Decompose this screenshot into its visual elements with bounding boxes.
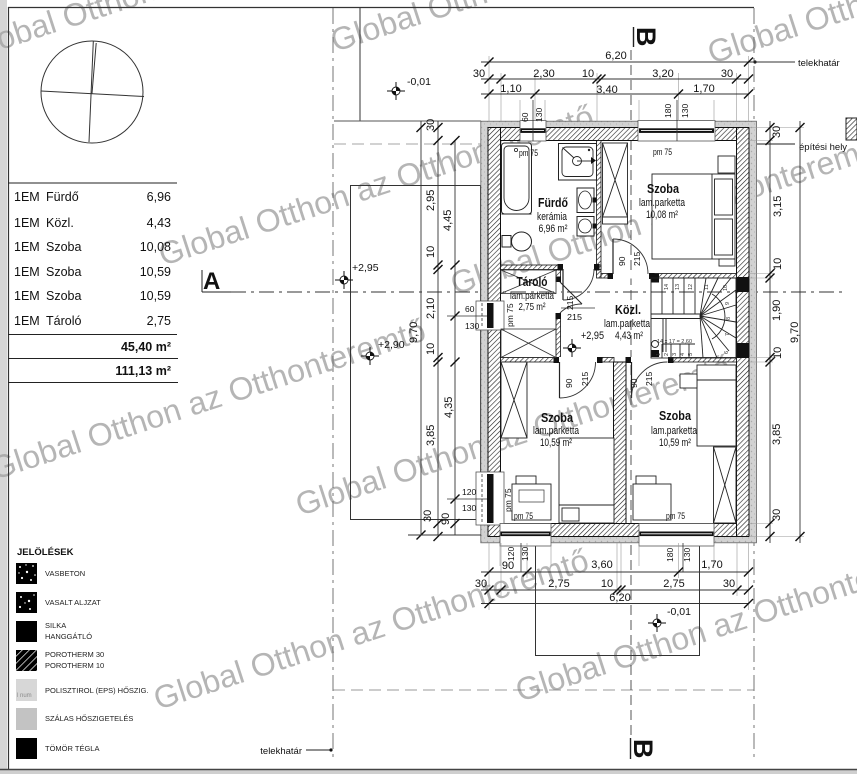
svg-text:3,60: 3,60 xyxy=(591,559,612,571)
svg-text:lam.parketta: lam.parketta xyxy=(533,425,580,437)
svg-text:lam.parketta: lam.parketta xyxy=(639,197,686,209)
svg-text:6,20: 6,20 xyxy=(605,50,626,62)
svg-text:130: 130 xyxy=(465,321,479,331)
svg-text:HANGGÁTLÓ: HANGGÁTLÓ xyxy=(45,632,92,641)
svg-text:pm 75: pm 75 xyxy=(514,511,533,521)
svg-text:1EM: 1EM xyxy=(14,265,40,279)
svg-text:2,10: 2,10 xyxy=(425,298,437,319)
svg-text:pm 75: pm 75 xyxy=(519,148,538,158)
svg-text:1,70: 1,70 xyxy=(701,559,722,571)
svg-text:Szoba: Szoba xyxy=(46,289,81,303)
svg-text:10,59 m²: 10,59 m² xyxy=(540,437,572,449)
svg-text:4: 4 xyxy=(680,353,686,356)
svg-text:Szoba: Szoba xyxy=(46,265,81,279)
svg-text:130: 130 xyxy=(680,104,690,118)
svg-text:lam.parketta: lam.parketta xyxy=(651,425,698,437)
svg-text:1,90: 1,90 xyxy=(771,300,783,321)
svg-text:30: 30 xyxy=(721,68,733,80)
svg-text:Fürdő: Fürdő xyxy=(46,190,79,204)
svg-text:30: 30 xyxy=(422,510,434,522)
svg-text:90: 90 xyxy=(617,256,627,266)
svg-text:10,59 m²: 10,59 m² xyxy=(659,437,691,449)
svg-text:Közl.: Közl. xyxy=(615,302,641,317)
svg-text:10: 10 xyxy=(425,246,437,258)
svg-text:14 x 17 = 2,60: 14 x 17 = 2,60 xyxy=(657,339,692,345)
svg-text:kerámia: kerámia xyxy=(537,211,568,223)
svg-text:3,40: 3,40 xyxy=(596,84,617,96)
svg-text:30: 30 xyxy=(723,578,735,590)
svg-text:30: 30 xyxy=(771,126,783,138)
svg-text:10: 10 xyxy=(601,578,613,590)
svg-text:14: 14 xyxy=(664,284,670,290)
svg-text:4,43: 4,43 xyxy=(147,216,171,230)
svg-text:2,75: 2,75 xyxy=(147,314,171,328)
svg-text:45,40 m²: 45,40 m² xyxy=(121,340,171,354)
svg-text:60: 60 xyxy=(520,112,530,122)
svg-text:30: 30 xyxy=(425,119,437,131)
svg-text:180: 180 xyxy=(665,548,675,562)
svg-text:3: 3 xyxy=(672,353,678,356)
svg-text:2,95: 2,95 xyxy=(425,190,437,211)
svg-text:1EM: 1EM xyxy=(14,240,40,254)
svg-text:1EM: 1EM xyxy=(14,314,40,328)
svg-text:10,08 m²: 10,08 m² xyxy=(646,209,678,221)
svg-text:-0,01: -0,01 xyxy=(667,606,691,618)
svg-text:POLISZTIROL (EPS) HŐSZIG.: POLISZTIROL (EPS) HŐSZIG. xyxy=(45,686,149,695)
svg-text:pm 75: pm 75 xyxy=(653,147,672,157)
svg-text:2,75: 2,75 xyxy=(663,578,684,590)
svg-text:építési hely: építési hely xyxy=(799,142,847,153)
svg-text:3,85: 3,85 xyxy=(425,425,437,446)
svg-text:215: 215 xyxy=(565,296,575,310)
svg-text:9: 9 xyxy=(725,302,731,305)
svg-text:10: 10 xyxy=(582,68,594,80)
svg-text:1EM: 1EM xyxy=(14,216,40,230)
svg-text:pm 75: pm 75 xyxy=(503,488,513,512)
svg-text:111,13 m²: 111,13 m² xyxy=(115,364,171,378)
svg-text:8: 8 xyxy=(726,317,732,320)
svg-text:A: A xyxy=(203,268,220,295)
svg-text:1: 1 xyxy=(656,353,662,356)
svg-text:4,45: 4,45 xyxy=(442,210,454,231)
svg-text:Szoba: Szoba xyxy=(647,181,680,196)
svg-text:TÖMÖR TÉGLA: TÖMÖR TÉGLA xyxy=(45,744,99,753)
svg-text:Szoba: Szoba xyxy=(659,408,692,423)
svg-text:JELÖLÉSEK: JELÖLÉSEK xyxy=(17,547,74,558)
svg-text:POROTHERM 10: POROTHERM 10 xyxy=(45,661,104,670)
svg-text:215: 215 xyxy=(632,252,642,266)
svg-text:SILKA: SILKA xyxy=(45,621,66,630)
svg-text:3,15: 3,15 xyxy=(772,196,784,217)
svg-text:+2,95: +2,95 xyxy=(352,262,379,274)
svg-text:6,20: 6,20 xyxy=(609,592,630,604)
svg-text:4,35: 4,35 xyxy=(443,397,455,418)
svg-text:9,70: 9,70 xyxy=(789,322,801,343)
svg-text:6,96: 6,96 xyxy=(147,190,171,204)
svg-text:130: 130 xyxy=(520,547,530,561)
svg-text:Szoba: Szoba xyxy=(541,410,574,425)
svg-text:60: 60 xyxy=(465,304,475,314)
svg-text:10: 10 xyxy=(772,258,784,270)
svg-text:B: B xyxy=(631,27,661,47)
svg-text:10,59: 10,59 xyxy=(140,265,171,279)
svg-text:B: B xyxy=(628,739,658,759)
svg-text:30: 30 xyxy=(475,578,487,590)
svg-text:90: 90 xyxy=(440,513,452,525)
svg-text:2,75 m²: 2,75 m² xyxy=(519,301,546,313)
svg-text:telekhatár: telekhatár xyxy=(260,746,302,757)
svg-text:3,20: 3,20 xyxy=(652,68,673,80)
svg-text:Fürdő: Fürdő xyxy=(538,195,568,210)
svg-text:telekhatár: telekhatár xyxy=(798,58,840,69)
svg-text:120: 120 xyxy=(506,547,516,561)
svg-text:l num: l num xyxy=(17,693,32,699)
svg-text:10: 10 xyxy=(723,285,729,291)
svg-text:130: 130 xyxy=(534,108,544,122)
svg-text:4,43 m²: 4,43 m² xyxy=(615,330,643,342)
svg-text:VASALT ALJZAT: VASALT ALJZAT xyxy=(45,598,101,607)
svg-text:2,30: 2,30 xyxy=(533,68,554,80)
svg-text:11: 11 xyxy=(704,284,710,290)
svg-text:+2,90: +2,90 xyxy=(378,339,405,351)
svg-text:10,59: 10,59 xyxy=(140,289,171,303)
svg-text:SZÁLAS HŐSZIGETELÉS: SZÁLAS HŐSZIGETELÉS xyxy=(45,714,133,723)
svg-text:1EM: 1EM xyxy=(14,190,40,204)
svg-text:30: 30 xyxy=(771,509,783,521)
svg-text:13: 13 xyxy=(675,284,681,290)
svg-text:pm 75: pm 75 xyxy=(666,511,685,521)
svg-text:-0,01: -0,01 xyxy=(407,76,431,88)
svg-text:30: 30 xyxy=(473,68,485,80)
svg-text:120: 120 xyxy=(462,487,476,497)
svg-text:6: 6 xyxy=(724,351,730,354)
svg-text:215: 215 xyxy=(580,372,590,386)
svg-text:2: 2 xyxy=(664,353,670,356)
svg-text:+2,95: +2,95 xyxy=(581,330,604,342)
svg-text:10: 10 xyxy=(425,343,437,355)
svg-text:6,96 m²: 6,96 m² xyxy=(539,223,568,235)
svg-text:180: 180 xyxy=(663,104,673,118)
svg-text:12: 12 xyxy=(688,284,694,290)
svg-text:215: 215 xyxy=(644,372,654,386)
svg-text:pm 75: pm 75 xyxy=(505,303,515,327)
svg-text:2,75: 2,75 xyxy=(548,578,569,590)
svg-text:VASBETON: VASBETON xyxy=(45,569,85,578)
svg-text:9,70: 9,70 xyxy=(408,322,420,343)
svg-text:215: 215 xyxy=(567,312,582,322)
svg-text:Tároló: Tároló xyxy=(46,314,81,328)
svg-text:lam.parketta: lam.parketta xyxy=(604,318,651,330)
svg-text:90: 90 xyxy=(564,378,574,388)
svg-text:90: 90 xyxy=(629,378,639,388)
svg-text:5: 5 xyxy=(688,353,694,356)
svg-text:Tároló: Tároló xyxy=(517,275,548,289)
svg-text:1EM: 1EM xyxy=(14,289,40,303)
svg-text:7: 7 xyxy=(725,333,731,336)
svg-text:130: 130 xyxy=(462,503,476,513)
svg-text:POROTHERM 30: POROTHERM 30 xyxy=(45,650,104,659)
svg-text:3,85: 3,85 xyxy=(771,424,783,445)
svg-text:Közl.: Közl. xyxy=(46,216,74,230)
svg-text:10,08: 10,08 xyxy=(140,240,171,254)
svg-text:Szoba: Szoba xyxy=(46,240,81,254)
svg-text:1,10: 1,10 xyxy=(500,83,521,95)
svg-text:10: 10 xyxy=(772,347,784,359)
svg-text:90: 90 xyxy=(502,560,514,572)
svg-text:1,70: 1,70 xyxy=(693,83,714,95)
svg-text:130: 130 xyxy=(682,548,692,562)
